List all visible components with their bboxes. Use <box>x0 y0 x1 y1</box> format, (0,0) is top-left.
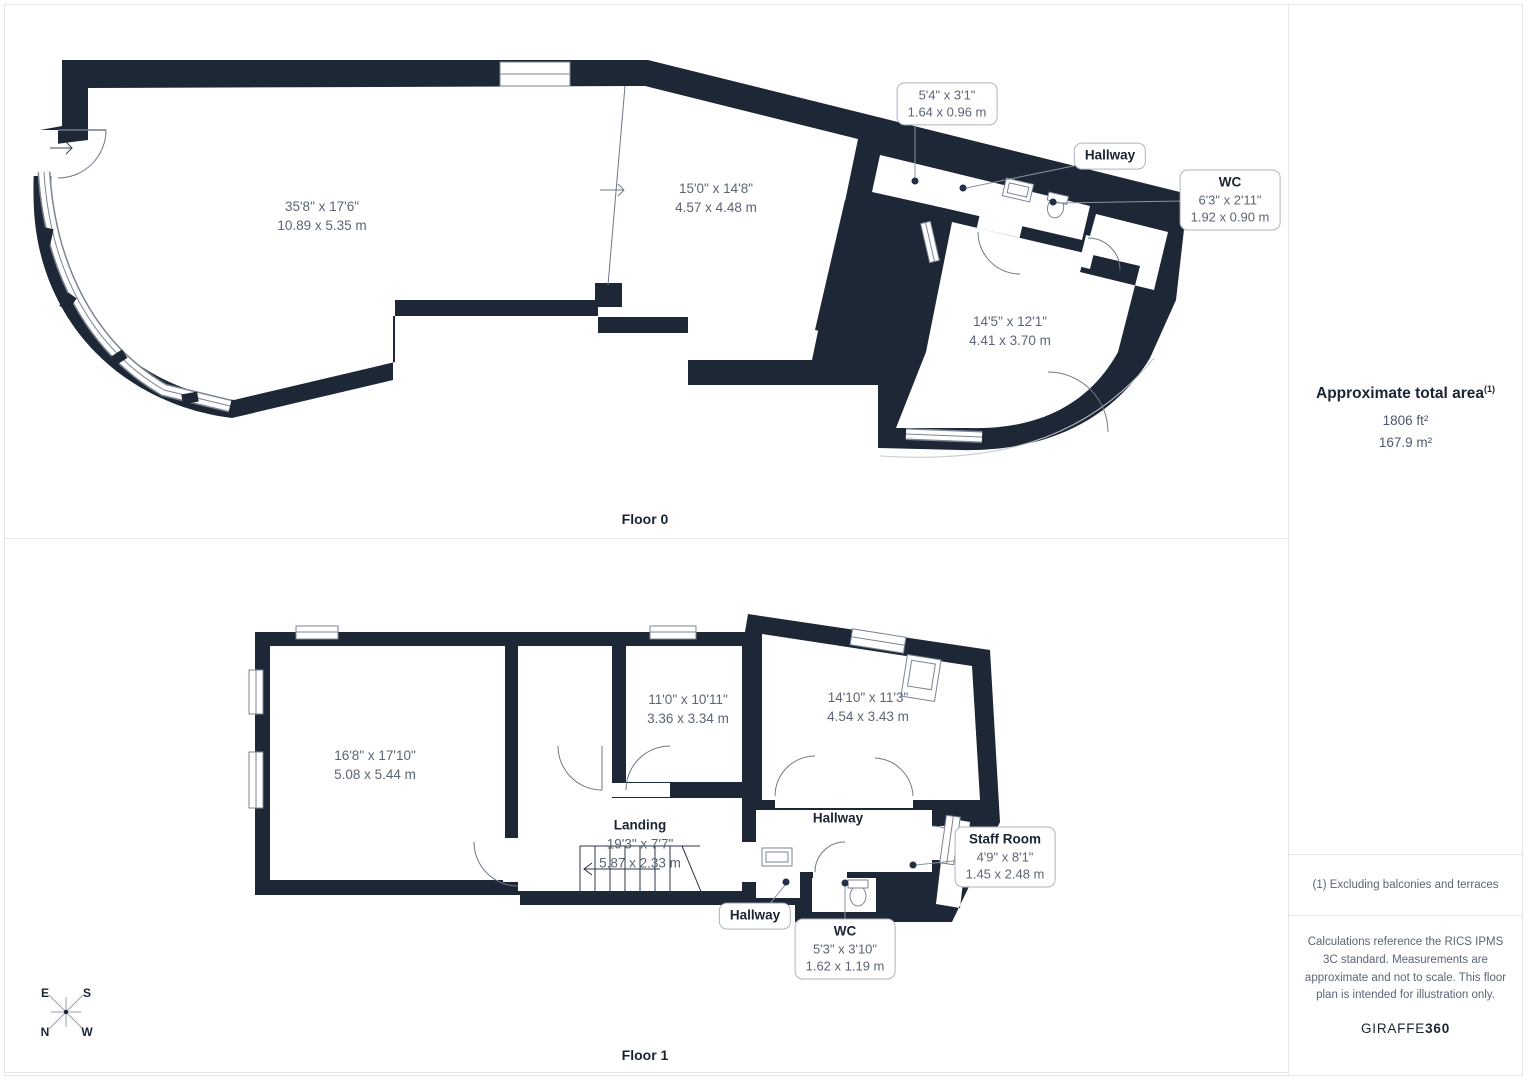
room-dimension-label: 35'8" x 17'6"10.89 x 5.35 m <box>277 198 366 236</box>
floorplan-page: 35'8" x 17'6"10.89 x 5.35 m 15'0" x 14'8… <box>0 0 1527 1080</box>
room-dimension-label: 11'0" x 10'11"3.36 x 3.34 m <box>647 691 729 729</box>
compass-n: N <box>41 1025 50 1039</box>
wc-callout: WC 5'3" x 3'10" 1.62 x 1.19 m <box>795 918 896 979</box>
compass-w: W <box>81 1025 93 1039</box>
room-dimension-label: 14'10" x 11'3"4.54 x 3.43 m <box>827 689 909 727</box>
dimension-callout: 5'4" x 3'1" 1.64 x 0.96 m <box>897 82 998 125</box>
floor0-panel: 35'8" x 17'6"10.89 x 5.35 m 15'0" x 14'8… <box>4 4 1288 538</box>
compass-e: E <box>41 986 49 1000</box>
total-area-title: Approximate total area(1) <box>1289 384 1522 403</box>
hallway-label: Hallway <box>813 811 863 826</box>
giraffe360-logo: GIRAFFE360 <box>1289 1021 1522 1036</box>
room-dimension-label: 15'0" x 14'8"4.57 x 4.48 m <box>675 180 757 218</box>
toilet-icon <box>1044 192 1069 220</box>
floor1-caption: Floor 1 <box>622 1047 669 1063</box>
floor0-caption: Floor 0 <box>622 511 669 527</box>
landing-label: Landing 19'3" x 7'7" 5.87 x 2.33 m <box>599 817 681 874</box>
hallway-callout: Hallway <box>719 903 791 930</box>
floor0-bay-windows <box>40 172 230 406</box>
room-dimension-label: 16'8" x 17'10"5.08 x 5.44 m <box>334 747 416 785</box>
floor0-top-window <box>500 62 570 86</box>
toilet-icon <box>848 880 868 906</box>
floor0-divider-line <box>600 86 625 285</box>
footnote-text: (1) Excluding balconies and terraces <box>1289 854 1522 916</box>
info-sidebar: Approximate total area(1) 1806 ft² 167.9… <box>1289 4 1522 1076</box>
total-area-imperial: 1806 ft² <box>1289 413 1522 428</box>
floor1-plan: E S N W <box>4 539 1288 1073</box>
floor0-plan <box>4 4 1288 538</box>
compass-s: S <box>83 986 91 1000</box>
wc-callout: WC 6'3" x 2'11" 1.92 x 0.90 m <box>1180 169 1281 230</box>
room-dimension-label: 14'5" x 12'1"4.41 x 3.70 m <box>969 313 1051 351</box>
floor1-door-arcs <box>474 746 966 886</box>
floor1-panel: E S N W 16'8" x 17'10"5.08 x 5.44 m 11'0… <box>4 539 1288 1073</box>
staff-room-callout: Staff Room 4'9" x 8'1" 1.45 x 2.48 m <box>955 826 1056 887</box>
disclaimer-block: Calculations reference the RICS IPMS 3C … <box>1289 934 1522 1036</box>
compass-icon: E S N W <box>41 986 94 1039</box>
entry-opening <box>28 130 58 176</box>
floor0-wall-stub <box>595 283 622 307</box>
sink-icon <box>762 848 792 866</box>
total-area-metric: 167.9 m² <box>1289 435 1522 450</box>
footnote-mark: (1) <box>1484 384 1495 394</box>
hallway-callout: Hallway <box>1074 143 1146 170</box>
total-area-block: Approximate total area(1) 1806 ft² 167.9… <box>1289 384 1522 457</box>
disclaimer-text: Calculations reference the RICS IPMS 3C … <box>1303 934 1509 1005</box>
